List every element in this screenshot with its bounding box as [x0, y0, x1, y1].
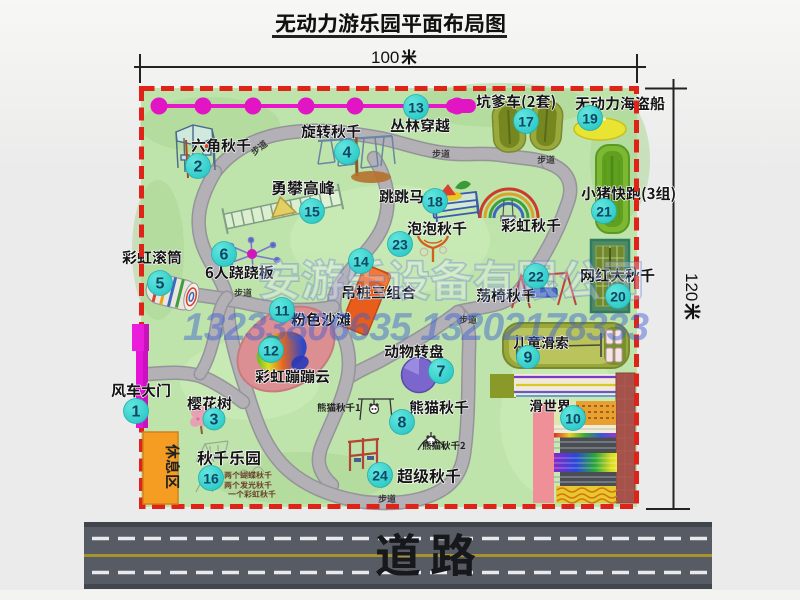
svg-text:4: 4 — [343, 145, 352, 162]
svg-text:23: 23 — [392, 237, 408, 253]
svg-text:15: 15 — [304, 204, 320, 220]
svg-text:13233806635 13202178333: 13233806635 13202178333 — [183, 306, 649, 349]
svg-text:13: 13 — [408, 100, 424, 116]
svg-text:8: 8 — [398, 415, 407, 432]
svg-text:17: 17 — [518, 114, 534, 130]
svg-text:21: 21 — [596, 204, 612, 220]
svg-text:1: 1 — [132, 404, 141, 421]
svg-text:100: 100 — [371, 48, 399, 67]
svg-text:22: 22 — [528, 269, 544, 285]
svg-text:16: 16 — [203, 471, 219, 487]
svg-text:11: 11 — [275, 303, 290, 319]
svg-text:9: 9 — [524, 350, 533, 367]
svg-text:14: 14 — [353, 254, 369, 270]
svg-text:3: 3 — [210, 412, 219, 429]
svg-text:12: 12 — [263, 343, 279, 359]
svg-text:2: 2 — [194, 159, 203, 176]
svg-text:6: 6 — [220, 247, 229, 264]
svg-text:18: 18 — [427, 194, 443, 210]
svg-text:10: 10 — [565, 411, 581, 427]
svg-text:7: 7 — [437, 364, 446, 381]
svg-text:20: 20 — [610, 289, 626, 305]
svg-text:19: 19 — [582, 111, 598, 127]
svg-text:5: 5 — [156, 276, 165, 293]
svg-text:120: 120 — [682, 273, 701, 301]
svg-text:24: 24 — [372, 468, 388, 484]
